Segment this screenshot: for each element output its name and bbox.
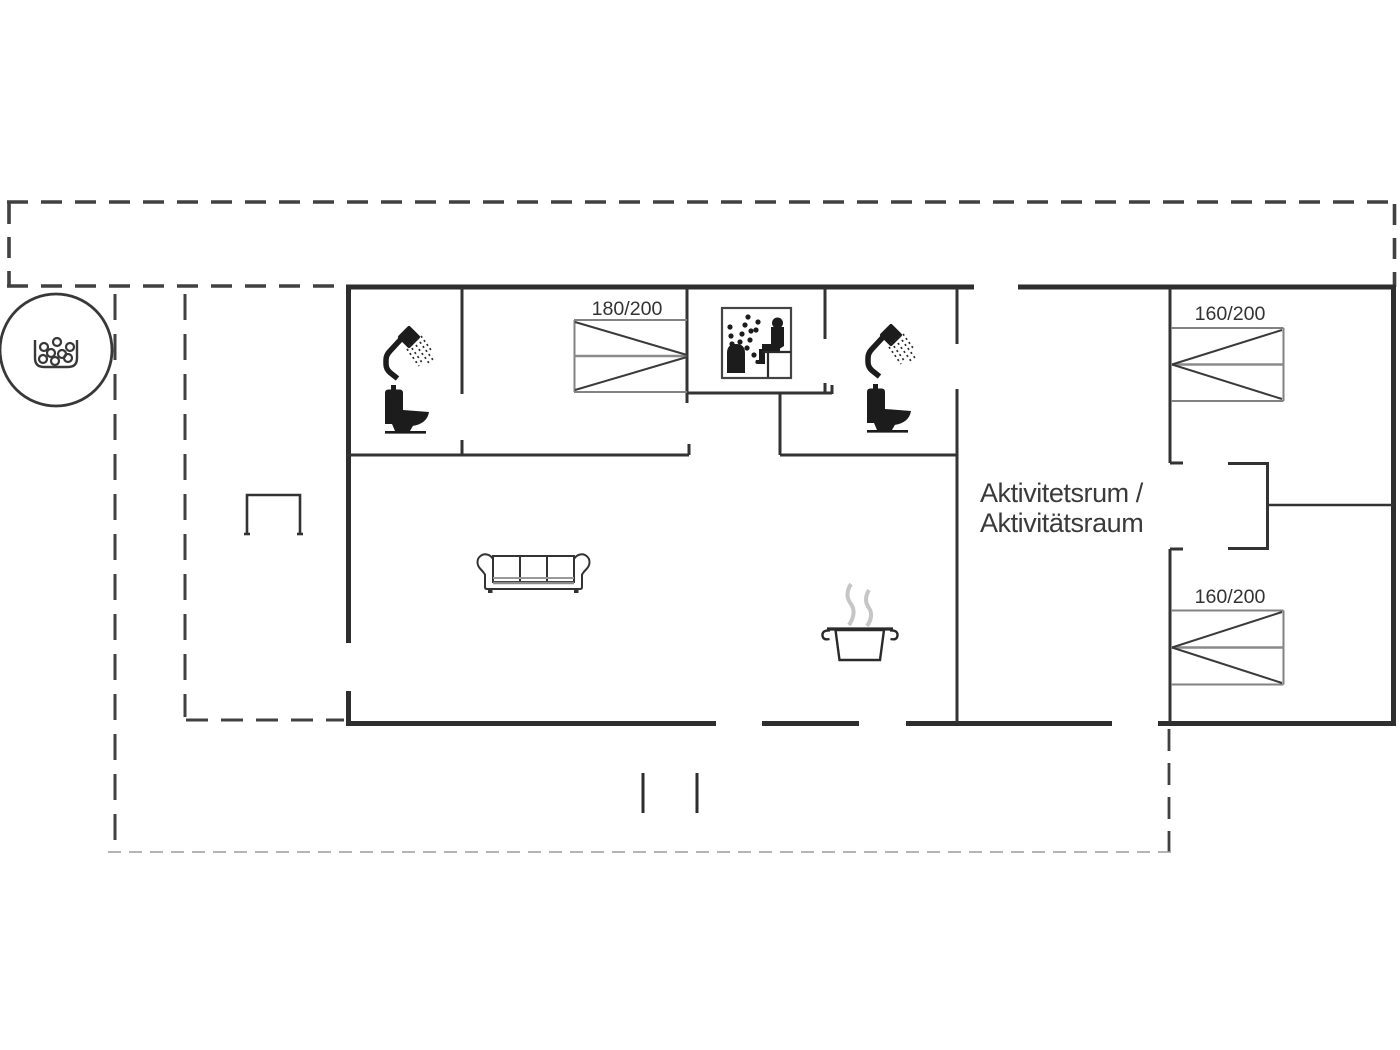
svg-text:Aktivitätsraum: Aktivitätsraum	[980, 508, 1143, 538]
svg-text:180/200: 180/200	[592, 298, 663, 320]
svg-text:Aktivitetsrum /: Aktivitetsrum /	[980, 478, 1144, 508]
svg-text:160/200: 160/200	[1195, 303, 1266, 325]
svg-text:160/200: 160/200	[1195, 586, 1266, 608]
